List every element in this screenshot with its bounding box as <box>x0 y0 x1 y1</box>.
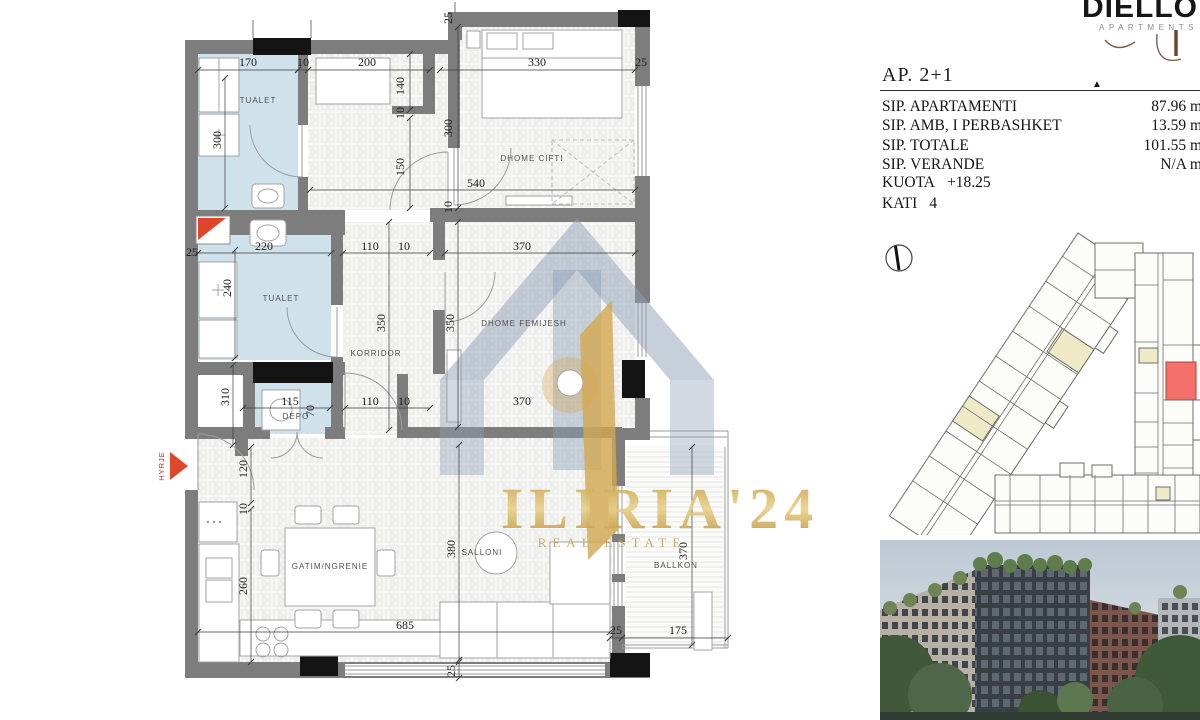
table-row: SIP. TOTALE101.55 m <box>882 136 1200 155</box>
pointer-icon: ▲ <box>1092 79 1102 90</box>
svg-text:220: 220 <box>255 239 273 253</box>
svg-text:170: 170 <box>239 55 257 69</box>
svg-text:110: 110 <box>361 394 379 408</box>
svg-text:110: 110 <box>361 239 379 253</box>
svg-text:25: 25 <box>441 12 455 24</box>
svg-text:330: 330 <box>528 55 546 69</box>
building-photo <box>880 540 1200 720</box>
entrance-arrow-icon <box>170 452 188 480</box>
svg-text:120: 120 <box>236 460 250 478</box>
row-label: SIP. VERANDE <box>882 155 984 174</box>
svg-text:DHOME FEMIJESH: DHOME FEMIJESH <box>481 319 567 328</box>
row-label: SIP. AMB, I PERBASHKET <box>882 116 1062 135</box>
svg-text:350: 350 <box>374 314 388 332</box>
svg-text:685: 685 <box>396 618 414 632</box>
svg-text:TUALET: TUALET <box>240 96 277 105</box>
row-value: N/A m <box>1160 155 1200 174</box>
svg-text:DEPO: DEPO <box>283 412 310 421</box>
svg-text:200: 200 <box>358 55 376 69</box>
svg-text:TUALET: TUALET <box>263 294 300 303</box>
svg-text:115: 115 <box>281 394 299 408</box>
site-plan <box>880 225 1200 535</box>
svg-text:GATIM/NGRENIE: GATIM/NGRENIE <box>292 562 368 571</box>
site-plan-selected-unit[interactable] <box>1166 362 1196 400</box>
row-value: 87.96 m <box>1151 97 1200 116</box>
floorplan-sheet: 1701020033025140253003001015054010252201… <box>0 0 1200 720</box>
brand-emblem-icon <box>1095 28 1200 73</box>
svg-text:300: 300 <box>441 119 455 137</box>
svg-text:25: 25 <box>186 245 198 259</box>
floor-plan: 1701020033025140253003001015054010252201… <box>0 0 880 720</box>
svg-text:300: 300 <box>210 131 224 149</box>
svg-text:370: 370 <box>513 239 531 253</box>
svg-text:140: 140 <box>393 77 407 95</box>
svg-text:10: 10 <box>398 394 410 408</box>
svg-text:10: 10 <box>441 201 455 213</box>
svg-text:25: 25 <box>635 55 647 69</box>
row-value: 13.59 m <box>1151 116 1200 135</box>
svg-text:380: 380 <box>444 540 458 558</box>
entrance-label: HYRJE <box>157 451 166 481</box>
table-row: SIP. VERANDEN/A m <box>882 155 1200 174</box>
brand-logo: DIELLON <box>1082 0 1200 25</box>
svg-text:540: 540 <box>467 176 485 190</box>
svg-text:25: 25 <box>610 623 622 637</box>
svg-text:10: 10 <box>393 107 407 119</box>
svg-text:KORRIDOR: KORRIDOR <box>350 349 401 358</box>
svg-text:10: 10 <box>236 503 250 515</box>
svg-text:310: 310 <box>218 388 232 406</box>
svg-text:260: 260 <box>236 577 250 595</box>
svg-text:25: 25 <box>444 665 458 677</box>
svg-text:BALLKON: BALLKON <box>654 561 698 570</box>
svg-text:ILIRIA'24: ILIRIA'24 <box>501 476 819 541</box>
compass-icon <box>886 245 912 271</box>
svg-text:DHOME CIFTI: DHOME CIFTI <box>501 154 564 163</box>
svg-text:370: 370 <box>513 394 531 408</box>
svg-text:REAL ESTATE: REAL ESTATE <box>538 535 687 550</box>
kati-line: KATI4 <box>882 195 937 213</box>
area-table: SIP. APARTAMENTI87.96 m SIP. AMB, I PERB… <box>882 97 1200 174</box>
svg-text:175: 175 <box>669 623 687 637</box>
apartment-title: AP. 2+1 <box>882 64 954 87</box>
svg-text:10: 10 <box>297 55 309 69</box>
table-row: SIP. APARTAMENTI87.96 m <box>882 97 1200 116</box>
kuota-line: KUOTA+18.25 <box>882 174 991 192</box>
row-label: SIP. TOTALE <box>882 136 969 155</box>
svg-text:10: 10 <box>398 239 410 253</box>
table-row: SIP. AMB, I PERBASHKET13.59 m <box>882 116 1200 135</box>
row-value: 101.55 m <box>1143 136 1200 155</box>
svg-text:150: 150 <box>393 158 407 176</box>
row-label: SIP. APARTAMENTI <box>882 97 1017 116</box>
divider <box>880 90 1200 91</box>
svg-text:SALLONI: SALLONI <box>462 548 503 557</box>
watermark-text: ILIRIA'24 REAL ESTATE <box>501 476 819 550</box>
svg-text:240: 240 <box>220 279 234 297</box>
svg-text:350: 350 <box>443 314 457 332</box>
